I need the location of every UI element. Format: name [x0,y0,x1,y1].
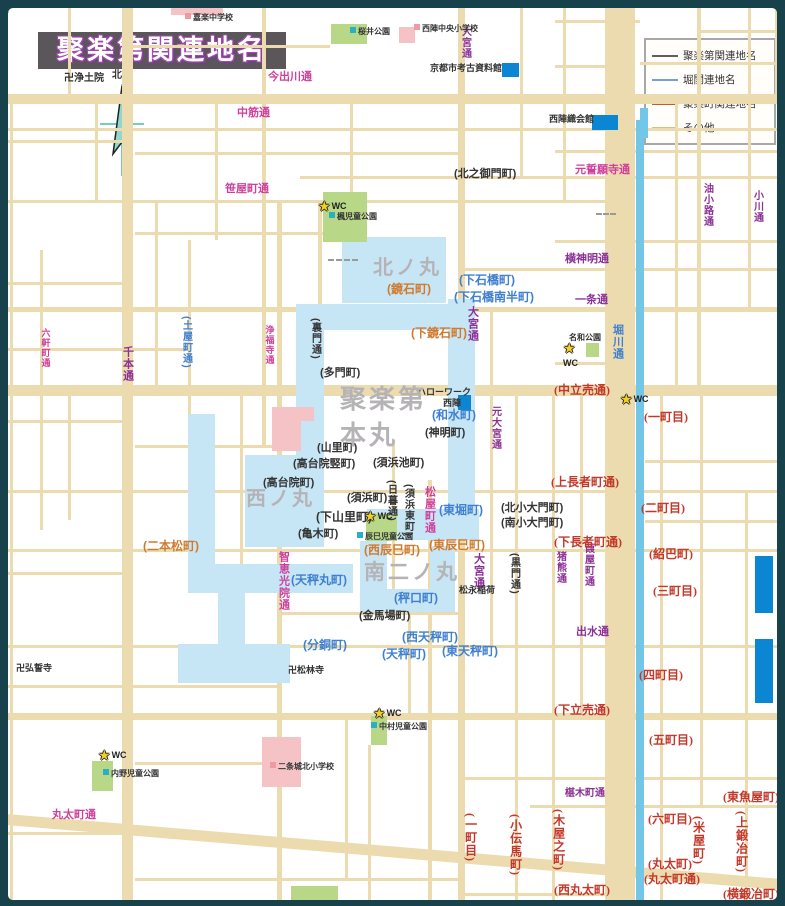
map-label: 北 [112,71,122,82]
street-segment [135,762,278,765]
map-label: 一条通 [575,295,608,307]
map-label: (下石橋南半町) [454,291,534,304]
school-area [399,27,415,43]
map-label: (東天秤町) [442,645,498,658]
map-label: 浄福寺通 [264,325,273,365]
map-label: (東堀町) [439,504,483,517]
map-label: 六軒町通 [40,328,49,368]
map-label: (米屋町) [692,816,705,865]
map-label: 元大宮通 [489,406,500,450]
map-label: 南二ノ丸 [364,562,460,584]
map-label: (木屋之町) [552,809,565,871]
street-segment [675,94,678,385]
map-label: (東魚屋町) [723,791,777,804]
page-title: 聚楽第関連地名 [38,32,286,69]
street-segment [700,385,703,805]
map-label: 猪熊通 [554,551,565,584]
map-label: (二町目) [641,502,685,515]
map-label: (土屋町通) [180,316,191,369]
street-segment [8,348,190,351]
public-building [502,63,519,77]
map-label: 卍松林寺 [288,666,324,675]
map-label: 大宮通 [466,306,478,342]
street-segment [8,685,278,688]
map-label: 卍浄土院 [64,74,104,85]
street-segment [8,282,122,285]
park-area [586,343,599,357]
map-label: 中村児童公園 [371,722,427,731]
street-segment [520,8,523,176]
map-label: (紹巴町) [649,548,693,561]
street-segment [748,8,751,307]
wc-label: WC [634,394,649,404]
map-label: 元誓願寺通 [575,165,630,177]
wc-star-icon: ★ [318,198,331,214]
map-label: 今出川通 [268,72,312,84]
wc-star-icon: ★ [563,340,576,356]
wc-star-icon: ★ [364,508,377,524]
map-label: 葭屋町通 [582,543,593,587]
map-label: (東辰巳町) [429,539,485,552]
map-label: 堀川通 [611,324,623,360]
legend-line-swatch [652,79,678,81]
map-label: 松永稲荷 [459,586,495,595]
map-label: (丸太町) [648,858,692,871]
street-segment [700,30,777,33]
legend-label: 堀関連地名 [683,72,736,87]
street-segment [345,713,348,878]
map-label: (鏡石町) [387,283,431,296]
map-label: (和水町) [432,409,476,422]
map-label: (高台院竪町) [293,459,355,471]
map-label: (秤口町) [394,592,438,605]
legend-line-swatch [652,55,678,57]
street-segment [10,94,13,900]
map-label: 千本通 [121,346,133,382]
map-label: 松屋町通 [423,486,435,534]
public-building [755,639,773,703]
wc-label: WC [378,511,393,521]
wc-marker: ★WC [98,747,127,765]
street-segment [277,200,282,900]
street-segment [8,420,122,423]
wc-star-icon: ★ [373,705,386,721]
street-segment [8,140,122,143]
map-label: (小伝馬町) [509,814,522,876]
street-segment [640,62,777,65]
map-label: (五町目) [649,734,693,747]
map-label: (下長者町通) [554,536,622,549]
street-segment [215,94,218,240]
map-label: (横鍛冶町) [723,888,777,900]
street-segment [555,240,777,243]
moat-segment [178,644,290,683]
map-label: (下石橋町) [459,274,515,287]
map-frame: 今出川通中筋通笹屋町通元誓願寺通六軒町通浄福寺通智恵光院通松屋町通丸太町通千本通… [0,0,785,906]
map-label: (西丸太町) [554,884,610,897]
map-label: 出水通 [576,627,609,639]
street-segment [645,460,777,463]
map-label: 大宮通 [472,553,484,589]
map-label: (下鏡石町) [411,327,467,340]
map-label: (分銅町) [303,639,347,652]
street-segment [122,8,133,900]
public-building [755,556,773,613]
wc-label: WC [387,708,402,718]
map-label: 笹屋町通 [225,184,269,196]
wc-marker: ★WC [620,391,649,409]
map-label: (丸太町通) [644,873,700,886]
map-label: 辰巳児童公園 [357,532,413,541]
map-label: (六町目) [648,813,692,826]
map-label: 北ノ丸 [373,258,442,279]
map-label: (黒門通) [508,553,519,595]
park-marker-icon [350,27,356,33]
map-label: (裏門通) [309,318,320,360]
street-segment [130,45,330,48]
street-segment [135,232,330,235]
legend-label: 聚楽第関連地名 [683,48,757,63]
wc-marker: ★WC [318,198,347,216]
park-marker-icon [103,769,109,775]
horikawa-river [640,108,648,138]
map-label: 油小路通 [701,183,712,227]
map-label: (天秤町) [382,648,426,661]
map-label: (北小大門町) [501,503,563,515]
street-segment [135,152,460,155]
school-area [272,407,314,421]
street-segment [8,200,605,203]
street-segment [8,572,122,575]
map-label: (須浜町) [347,493,387,505]
map-label: 桜井公園 [350,27,390,36]
public-building [592,115,618,130]
map-label: (上鍛冶町) [735,811,748,873]
map-label: 丸太町通 [52,810,96,822]
map-label: (西天秤町) [402,631,458,644]
map-label: 西陣織会館 [549,115,594,124]
map-label: (西辰巳町) [364,544,420,557]
map-label: 本丸 [340,422,398,449]
map-label: (亀木町) [298,529,338,541]
street-segment [605,8,635,900]
map-label: (四町目) [639,669,683,682]
street-segment [368,745,371,900]
map-label: 嘉楽中学校 [185,13,233,22]
wc-label: WC [332,201,347,211]
map-label: (須浜池町) [373,458,424,470]
street-segment [40,250,43,530]
street-segment [155,200,158,385]
wc-label: WC [563,358,578,368]
map-label: (南小大門町) [501,518,563,530]
street-segment [262,8,266,445]
street-segment [555,150,777,153]
wc-star-icon: ★ [98,747,111,763]
map-label: 内野児童公園 [103,769,159,778]
school-marker-icon [414,24,420,30]
street-segment [460,268,777,271]
map-label: 京都市考古資料館 [430,64,502,73]
torii-shrine-icon [8,8,10,9]
wc-marker: ★WC [373,705,402,723]
street-segment [95,94,98,200]
street-segment [555,20,640,23]
street-segment [135,878,460,881]
street-segment [300,176,777,179]
map-label: 横神明通 [565,254,609,266]
street-segment [408,612,411,713]
map-label: (一町目) [644,411,688,424]
map-label: 二条城北小学校 [270,762,334,771]
map-label: (三町目) [653,585,697,598]
map-label: 西ノ丸 [246,489,315,510]
map-label: (下立売通) [554,704,610,717]
street-segment [68,385,71,520]
school-marker-icon [185,13,191,19]
map-label: (金馬場町) [359,611,410,623]
moat-segment [218,593,245,648]
map-label: 西陣 [443,399,461,408]
street-segment [460,777,777,780]
map-label: 中筋通 [237,108,270,120]
map-label: 聚楽第 [340,386,427,413]
street-segment [645,520,777,523]
park-area [291,886,338,900]
map-label: 椹木町通 [565,789,605,800]
wc-label: WC [112,750,127,760]
map-label: (中立売通) [554,384,610,397]
boundary-dash [596,213,616,215]
wc-marker: ★WC [563,340,578,368]
street-segment [8,832,122,835]
map-label: (天秤丸町) [291,574,347,587]
street-segment [530,805,777,808]
boundary-dash [328,259,358,261]
map-label: (須浜東町) [402,484,413,537]
wc-star-icon: ★ [620,391,633,407]
park-marker-icon [357,532,363,538]
map-label: 西陣中央小学校 [414,24,478,33]
map-label: (多門町) [320,368,360,380]
school-marker-icon [270,762,276,768]
map-label: (二本松町) [143,540,199,553]
map-label: (北之御門町) [454,169,516,181]
map-label: 小川通 [751,190,762,223]
map-label: 智恵光院通 [277,551,289,611]
wc-marker: ★WC [364,508,393,526]
map-label: (神明町) [425,428,465,440]
street-segment [775,8,777,94]
map-label: 卍弘誓寺 [16,664,52,673]
map-label: (上長者町通) [551,476,619,489]
street-segment [563,8,566,200]
map-label: (一町目) [464,813,477,862]
